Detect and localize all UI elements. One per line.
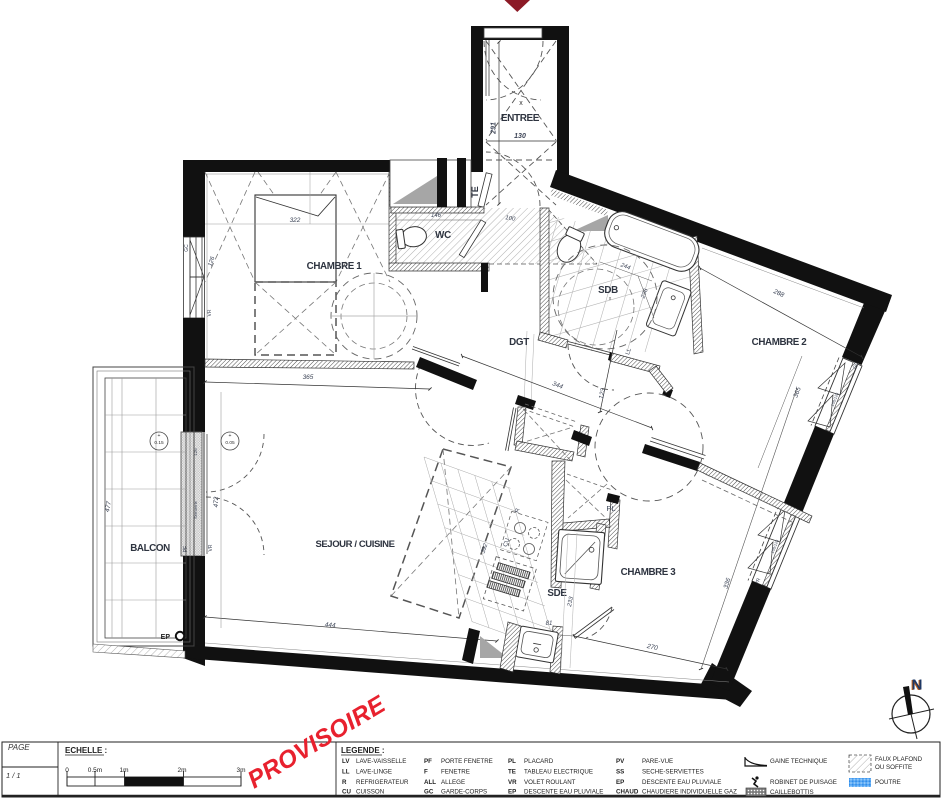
svg-text:444: 444 — [324, 622, 336, 630]
svg-text:365: 365 — [303, 374, 314, 381]
svg-text:DGT: DGT — [509, 337, 529, 348]
svg-text:81: 81 — [546, 621, 553, 627]
svg-text:CHAMBRE 1: CHAMBRE 1 — [307, 261, 363, 272]
svg-text:1 / 1: 1 / 1 — [6, 771, 21, 780]
svg-text:BALCON: BALCON — [130, 543, 170, 554]
svg-text:N: N — [912, 677, 923, 694]
svg-text:VOLET ROULANT: VOLET ROULANT — [524, 779, 576, 786]
svg-text:PARE-VUE: PARE-VUE — [642, 758, 673, 765]
svg-text:EP: EP — [616, 779, 624, 786]
svg-text:PV: PV — [616, 758, 625, 765]
svg-text:291: 291 — [491, 122, 498, 135]
svg-text:0.05: 0.05 — [225, 440, 235, 446]
svg-text:EP: EP — [161, 634, 171, 641]
svg-text:ENTREE: ENTREE — [501, 113, 540, 124]
svg-text:VR: VR — [508, 779, 517, 786]
svg-text:CHAMBRE 3: CHAMBRE 3 — [621, 567, 677, 578]
svg-text:SDE: SDE — [547, 588, 567, 599]
svg-text:PF: PF — [424, 758, 432, 765]
svg-text:SECHE-SERVIETTES: SECHE-SERVIETTES — [642, 769, 704, 776]
svg-text:0.15: 0.15 — [154, 440, 164, 446]
svg-text:CHAUDIERE INDIVIDUELLE GAZ: CHAUDIERE INDIVIDUELLE GAZ — [642, 789, 737, 796]
svg-text:PL: PL — [606, 504, 615, 513]
svg-text:GARDE-CORPS: GARDE-CORPS — [441, 789, 487, 796]
svg-text:DESCENTE EAU PLUVIALE: DESCENTE EAU PLUVIALE — [642, 779, 721, 786]
svg-text:ALL: ALL — [424, 779, 436, 786]
svg-text:TE: TE — [508, 769, 516, 776]
svg-text:472: 472 — [213, 496, 220, 507]
svg-text:CUISSON: CUISSON — [356, 789, 384, 796]
svg-text:ECHELLE :: ECHELLE : — [65, 746, 107, 755]
svg-text:2m: 2m — [177, 767, 186, 774]
svg-text:ALLEGE: ALLEGE — [441, 779, 465, 786]
svg-text:WC: WC — [435, 230, 451, 241]
svg-text:VR: VR — [208, 544, 214, 551]
svg-text:x: x — [519, 100, 523, 107]
svg-text:+: + — [229, 433, 232, 439]
svg-text:+: + — [158, 433, 161, 439]
svg-text:FENETRE: FENETRE — [441, 769, 470, 776]
svg-text:322: 322 — [290, 217, 301, 224]
svg-text:LAVE-LINGE: LAVE-LINGE — [356, 769, 392, 776]
svg-text:OU SOFFITE: OU SOFFITE — [875, 764, 912, 771]
svg-text:R: R — [342, 779, 347, 786]
svg-text:LEGENDE :: LEGENDE : — [341, 746, 385, 755]
svg-text:VR: VR — [207, 309, 213, 316]
svg-text:CHAMBRE 2: CHAMBRE 2 — [752, 337, 808, 348]
svg-text:REFRIGERATEUR: REFRIGERATEUR — [356, 779, 409, 786]
svg-text:TE: TE — [470, 186, 480, 198]
svg-text:130: 130 — [514, 133, 526, 140]
svg-text:PLACARD: PLACARD — [524, 758, 554, 765]
svg-text:POUTRE: POUTRE — [875, 779, 901, 786]
svg-text:GAINE TECHNIQUE: GAINE TECHNIQUE — [770, 758, 827, 765]
svg-text:F: F — [424, 769, 428, 776]
svg-text:PORTE FENETRE: PORTE FENETRE — [441, 758, 493, 765]
svg-text:SS: SS — [616, 769, 624, 776]
svg-text:CU: CU — [342, 789, 351, 796]
svg-text:PAGE: PAGE — [8, 743, 30, 752]
svg-text:GC: GC — [424, 789, 434, 796]
svg-text:CAILLEBOTTIS: CAILLEBOTTIS — [770, 789, 814, 796]
svg-text:1m: 1m — [119, 767, 128, 774]
svg-text:LL: LL — [342, 769, 350, 776]
svg-text:146: 146 — [431, 213, 442, 219]
svg-text:LV: LV — [342, 758, 350, 765]
svg-text:LAVE-VAISSELLE: LAVE-VAISSELLE — [356, 758, 406, 765]
svg-text:GC: GC — [184, 244, 190, 252]
svg-text:SDB: SDB — [598, 285, 618, 296]
svg-text:TABLEAU ELECTRIQUE: TABLEAU ELECTRIQUE — [524, 769, 593, 776]
svg-text:DESCENTE EAU PLUVIALE: DESCENTE EAU PLUVIALE — [524, 789, 603, 796]
svg-text:FAUX PLAFOND: FAUX PLAFOND — [875, 756, 923, 763]
svg-text:ROBINET DE PUISAGE: ROBINET DE PUISAGE — [770, 779, 837, 786]
svg-text:EP: EP — [508, 789, 516, 796]
svg-text:SEJOUR / CUISINE: SEJOUR / CUISINE — [315, 539, 394, 550]
svg-text:CHAUD: CHAUD — [616, 789, 639, 796]
svg-text:PL: PL — [508, 758, 516, 765]
